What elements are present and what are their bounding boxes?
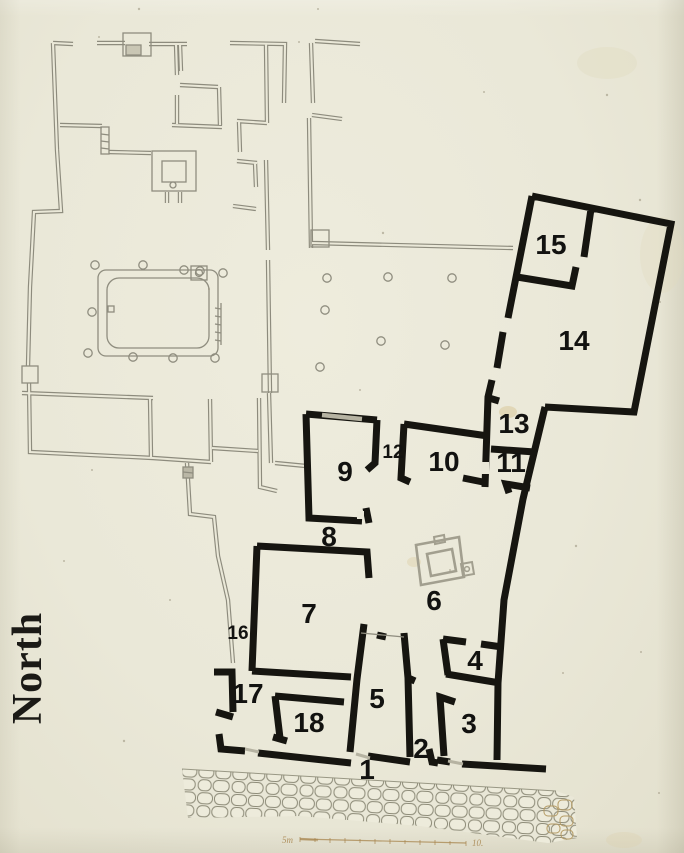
faint-house-plan xyxy=(22,33,513,663)
room-label-1: 1 xyxy=(359,754,375,785)
door-notch-11 xyxy=(481,462,489,474)
room-label-14: 14 xyxy=(558,325,590,356)
room-label-7: 7 xyxy=(301,598,317,629)
room-label-6: 6 xyxy=(426,585,442,616)
door-notch-9 xyxy=(357,511,364,519)
room-label-2: 2 xyxy=(413,733,429,764)
scale-left-label: 5m xyxy=(282,835,294,845)
cistern-head xyxy=(416,535,474,585)
room-label-11: 11 xyxy=(496,447,526,478)
scale-bar: 5m 10. xyxy=(282,835,483,848)
site-plan-scan: 5m 10. North 1 2 3 4 5 6 7 8 9 10 11 12 … xyxy=(0,0,684,853)
room-label-8: 8 xyxy=(321,521,337,552)
north-label: North xyxy=(5,612,51,724)
peristyle-pool xyxy=(98,266,221,356)
room-label-9: 9 xyxy=(337,456,353,487)
room-label-17: 17 xyxy=(232,678,263,709)
room-label-10: 10 xyxy=(428,446,459,477)
atrium-impluvium xyxy=(152,151,196,191)
paper-speckles xyxy=(63,8,661,794)
bold-house-plan xyxy=(214,196,671,769)
room-label-15: 15 xyxy=(535,229,566,260)
room-label-18: 18 xyxy=(293,707,324,738)
room-label-4: 4 xyxy=(467,645,483,676)
room-label-12: 12 xyxy=(382,442,403,463)
plan-svg: 5m 10. North 1 2 3 4 5 6 7 8 9 10 11 12 … xyxy=(0,0,684,853)
scale-right-label: 10. xyxy=(472,838,483,848)
room-label-5: 5 xyxy=(369,683,385,714)
room-label-3: 3 xyxy=(461,708,477,739)
cobblestone-street xyxy=(182,769,577,843)
room-label-16: 16 xyxy=(227,623,248,644)
room-label-13: 13 xyxy=(498,408,529,439)
